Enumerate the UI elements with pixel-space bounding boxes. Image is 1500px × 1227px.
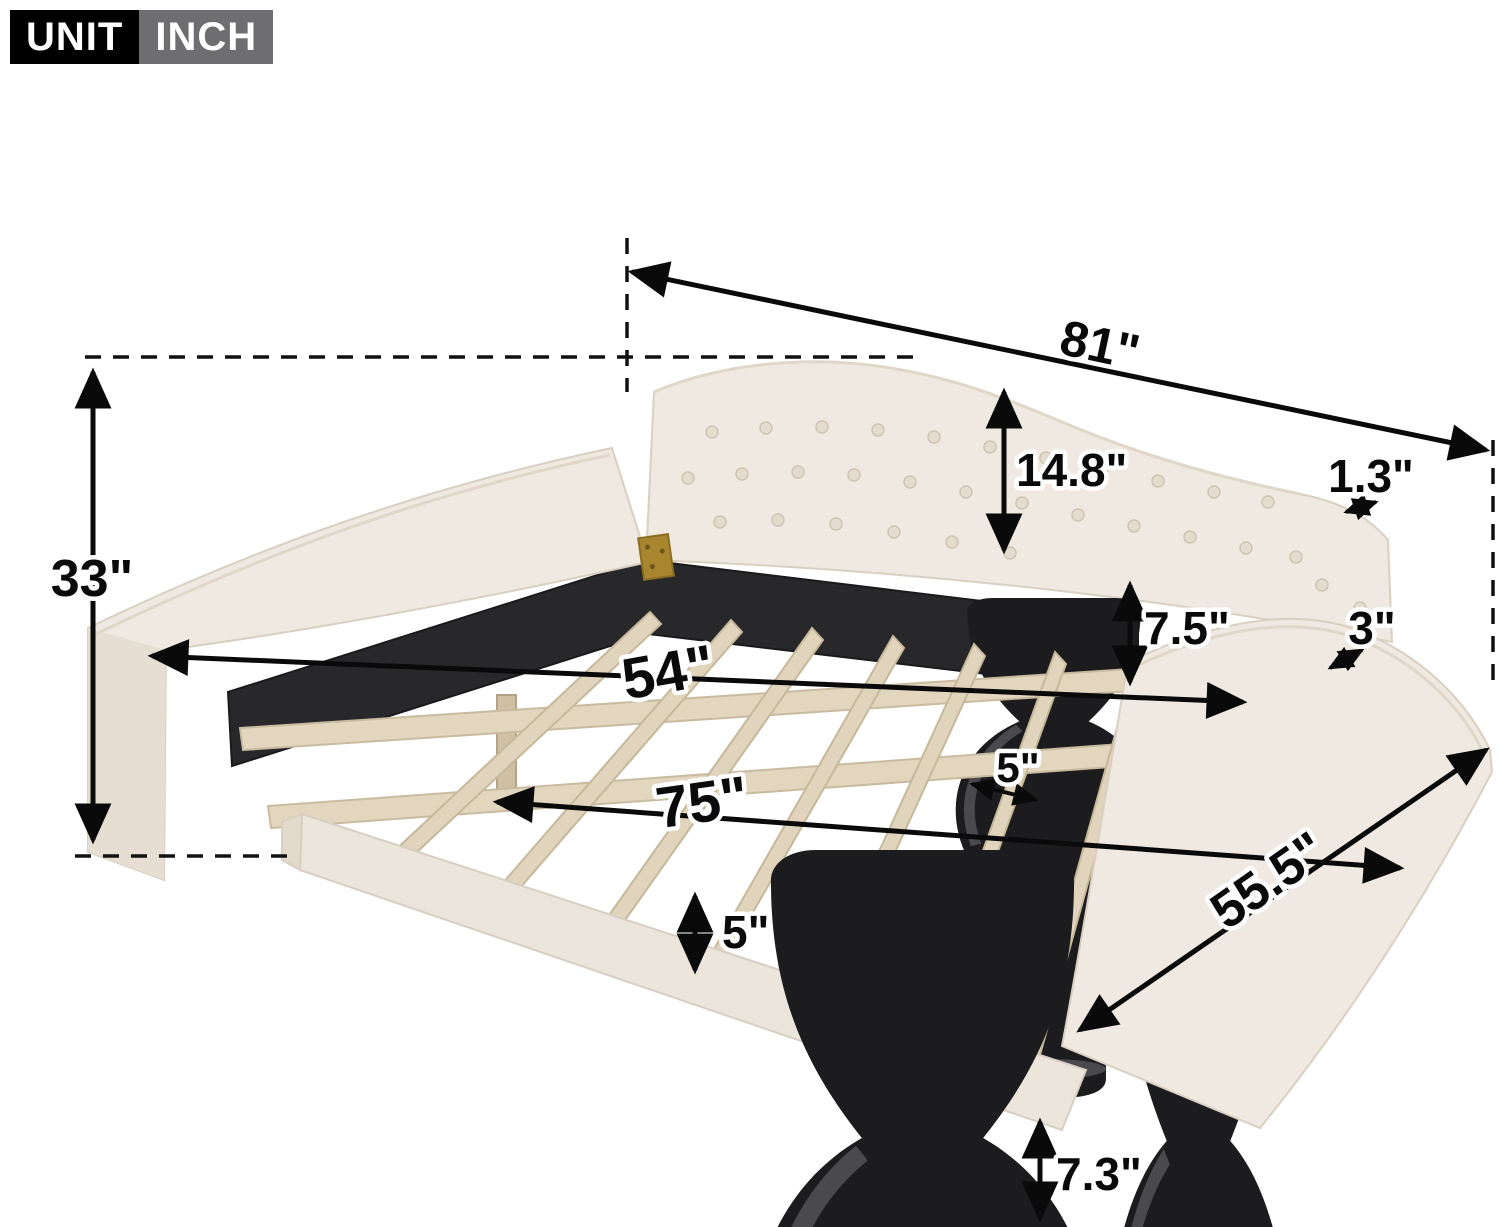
- unit-name-inch: INCH: [139, 10, 273, 64]
- dim-label-leg-height: 7.3": [1056, 1148, 1142, 1200]
- unit-badge: UNIT INCH: [10, 10, 273, 64]
- daybed-dimension-diagram: UNIT INCH: [0, 0, 1500, 1227]
- dim-label-overall-length: 81": [1055, 309, 1144, 380]
- daybed-illustration: 81" 33" 14.8" 1.3" 7.5" 3": [0, 0, 1500, 1227]
- dim-label-overall-height: 33": [51, 550, 134, 608]
- dim-label-headboard-thickness: 1.3": [1328, 450, 1414, 502]
- dim-label-headboard-height: 14.8": [1016, 444, 1127, 496]
- dim-label-arm-top-thickness: 3": [1348, 602, 1395, 654]
- dim-leg-height: 7.3": [1040, 1122, 1142, 1218]
- dim-label-slat-spacing: 5": [996, 744, 1039, 791]
- unit-label: UNIT: [10, 10, 139, 64]
- dim-label-front-rail-height: 5": [722, 906, 769, 958]
- dim-label-inner-length: 75": [652, 764, 752, 841]
- hinge-bracket: [638, 534, 674, 580]
- bed-leg-front-left: [750, 850, 1094, 1227]
- dim-headboard-thickness: 1.3": [1328, 450, 1414, 512]
- dim-label-side-rail-height: 7.5": [1144, 602, 1230, 654]
